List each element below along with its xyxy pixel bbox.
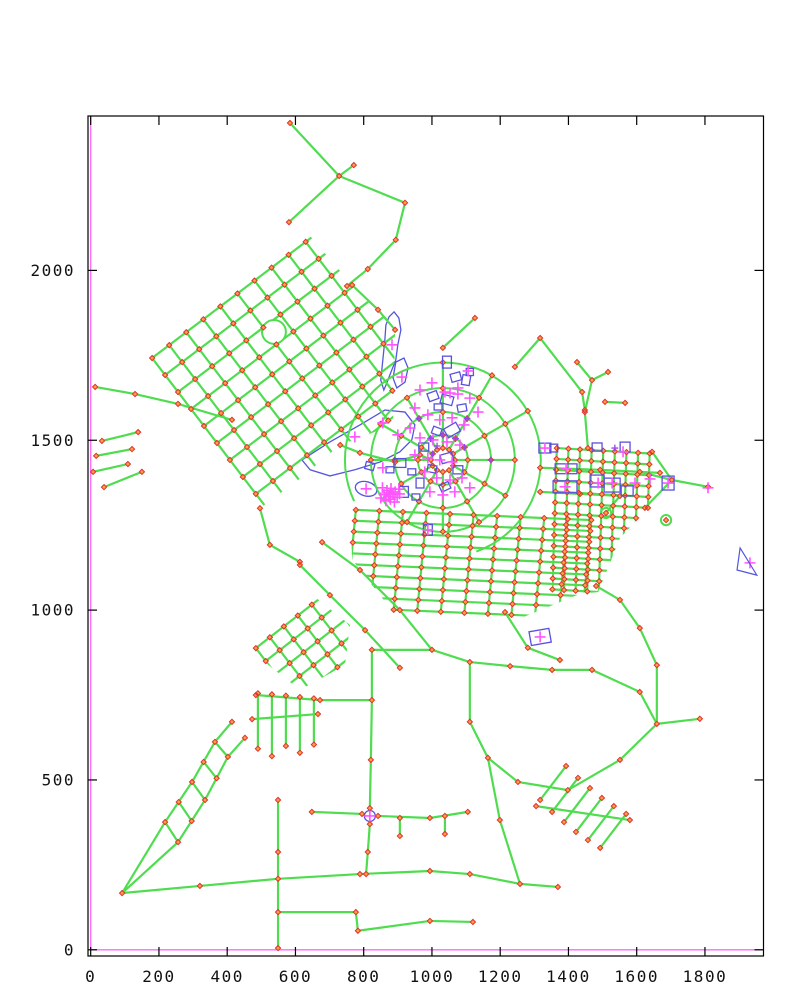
street-grid — [152, 216, 456, 511]
x-axis-tick-label: 1200 — [478, 967, 523, 986]
y-axis-tick-label: 500 — [42, 770, 75, 789]
x-axis-tick-label: 400 — [210, 967, 243, 986]
building-footprint — [457, 404, 467, 413]
building-footprint — [434, 404, 442, 410]
map-boundary-lines — [91, 117, 763, 950]
x-axis-tick-label: 800 — [347, 967, 380, 986]
north-arrow — [737, 548, 757, 575]
building-footprint — [439, 481, 451, 492]
y-axis-tick-label: 0 — [64, 940, 75, 959]
plot-window: 0200400600800100012001400160018000500100… — [0, 0, 800, 1000]
building-footprint — [461, 375, 470, 386]
y-axis-tick-label: 1000 — [30, 601, 75, 620]
y-axis-tick-label: 2000 — [30, 261, 75, 280]
y-axis-tick-label: 1500 — [30, 431, 75, 450]
building-footprint — [450, 372, 462, 382]
axis-frame: 0200400600800100012001400160018000500100… — [30, 116, 763, 986]
building-footprint — [408, 469, 416, 475]
x-axis-tick-label: 1600 — [614, 967, 659, 986]
x-axis-tick-label: 600 — [279, 967, 312, 986]
building-footprint — [427, 391, 439, 402]
x-axis-tick-label: 200 — [142, 967, 175, 986]
x-axis-tick-label: 1400 — [546, 967, 591, 986]
north-arrow-glyph — [737, 548, 757, 575]
x-axis-tick-label: 0 — [85, 967, 96, 986]
street-grid-layer — [152, 216, 650, 700]
building-footprint — [416, 478, 424, 488]
building-footprint — [466, 368, 473, 375]
x-axis-tick-label: 1000 — [410, 967, 455, 986]
building-footprint — [621, 486, 633, 496]
x-axis-tick-label: 1800 — [683, 967, 728, 986]
network-map-canvas[interactable]: 0200400600800100012001400160018000500100… — [0, 0, 800, 1000]
